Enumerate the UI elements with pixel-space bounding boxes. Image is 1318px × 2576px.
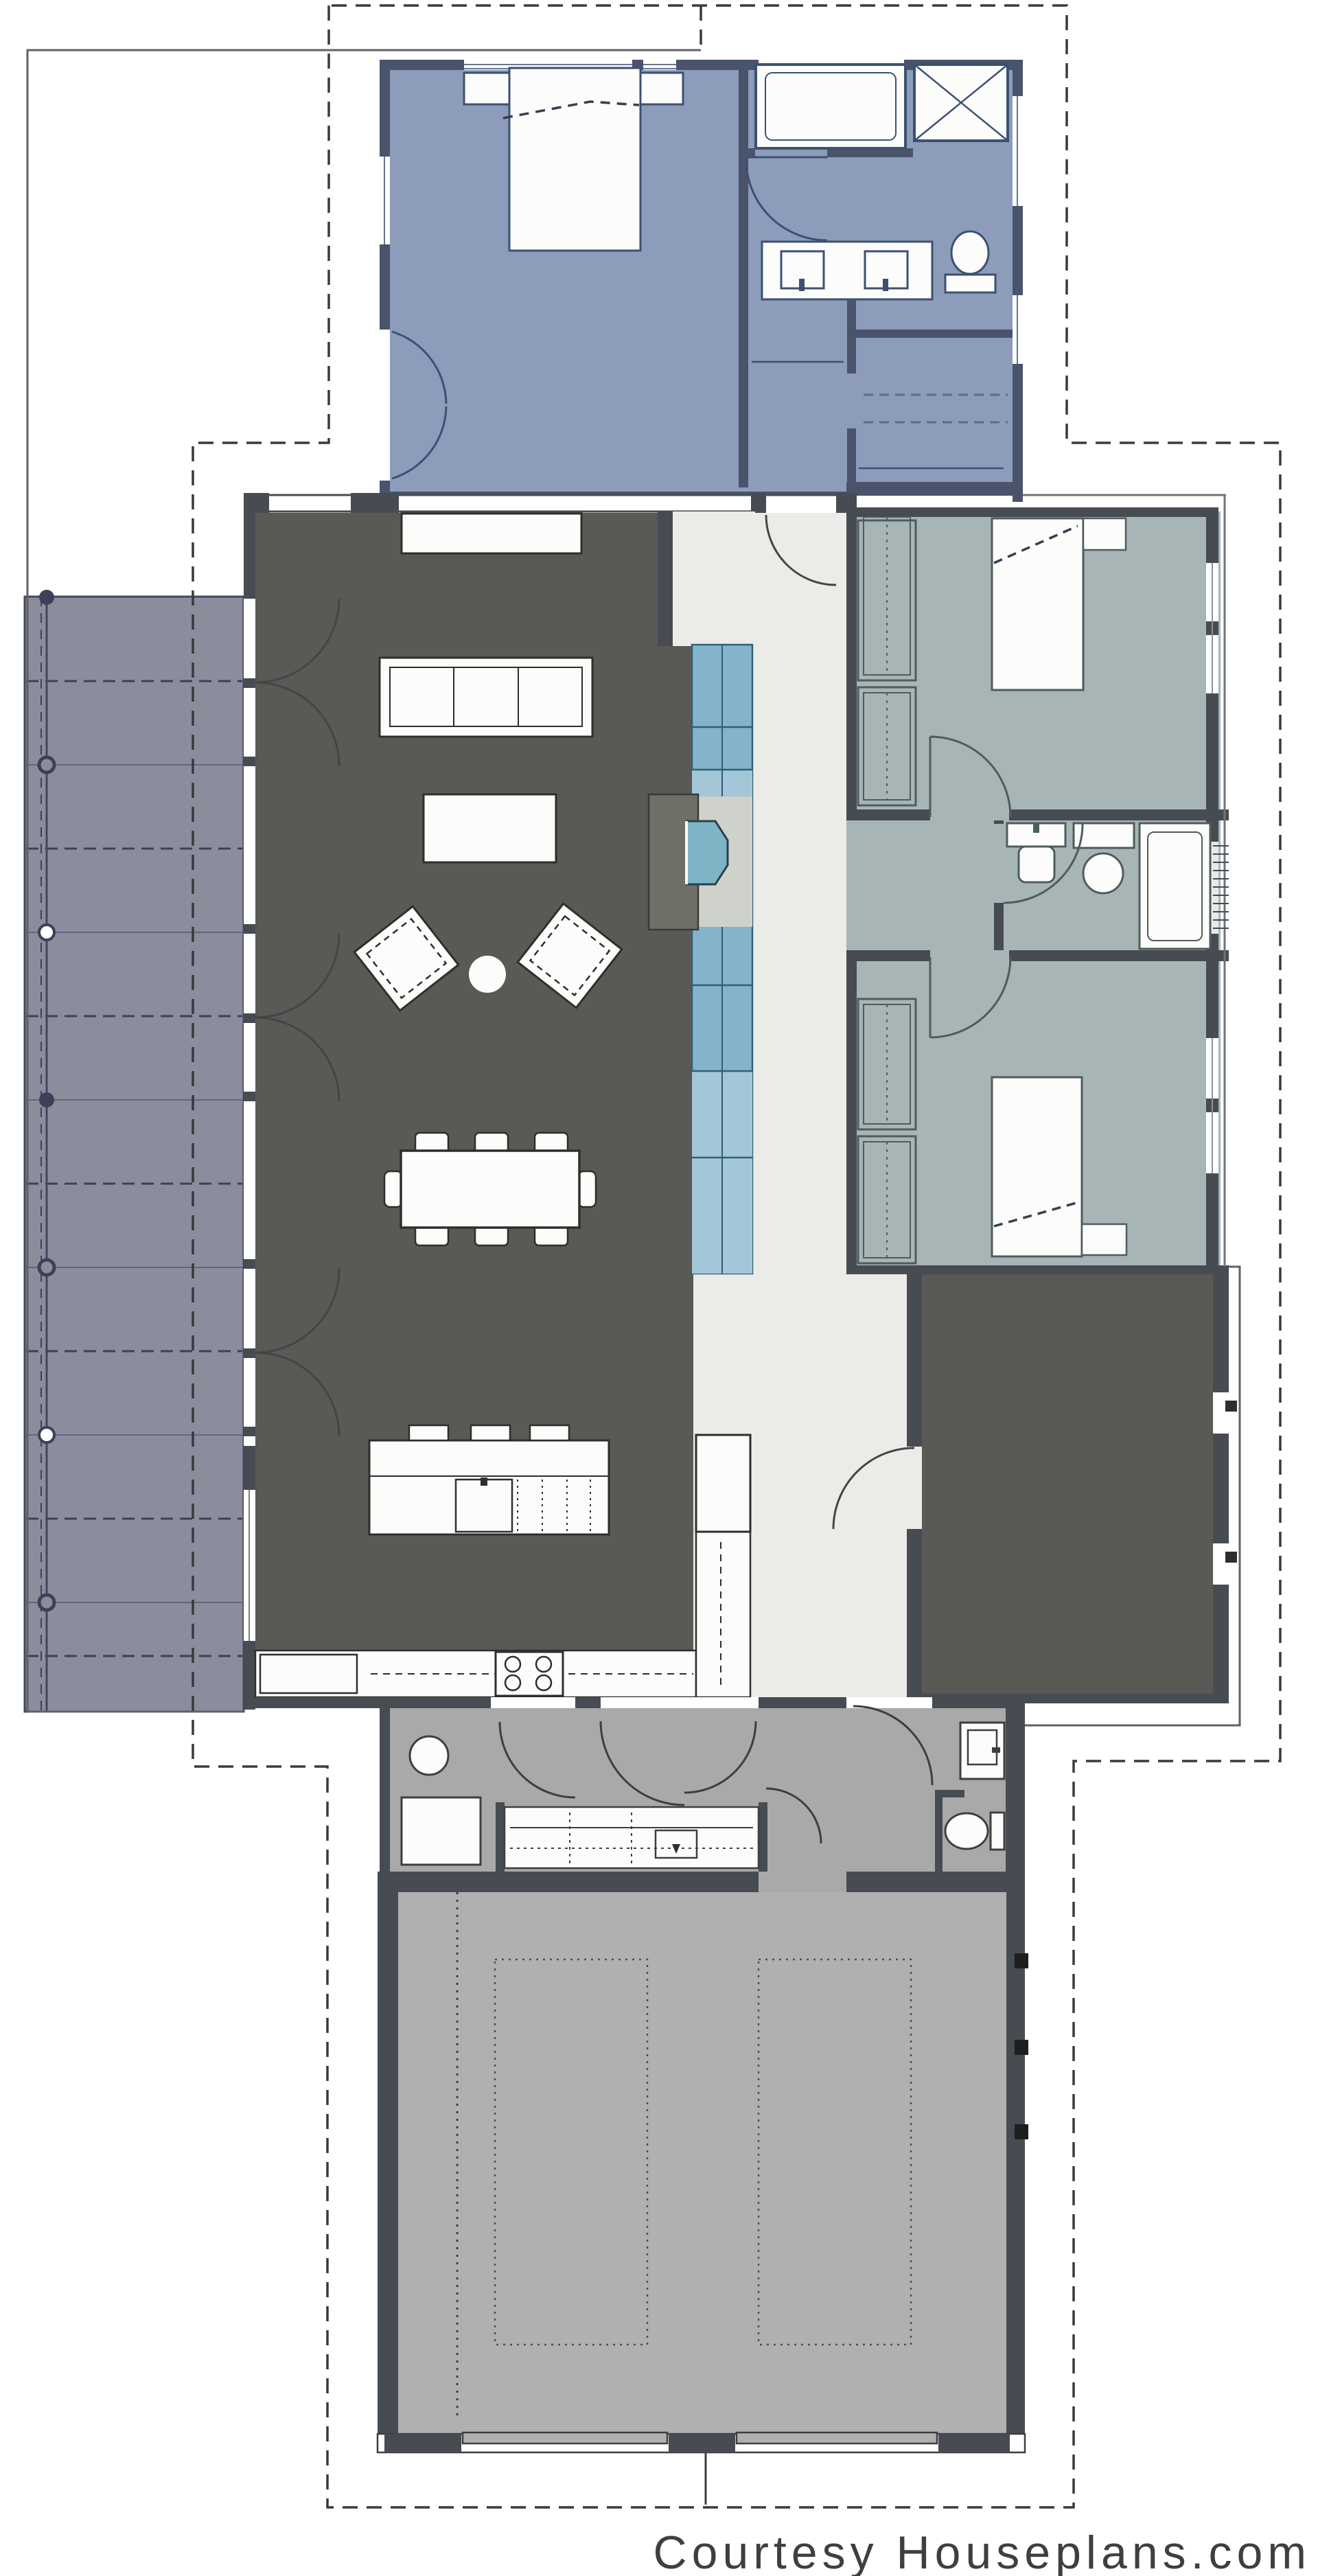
svg-text:Courtesy Houseplans.com: Courtesy Houseplans.com [654, 2527, 1311, 2576]
